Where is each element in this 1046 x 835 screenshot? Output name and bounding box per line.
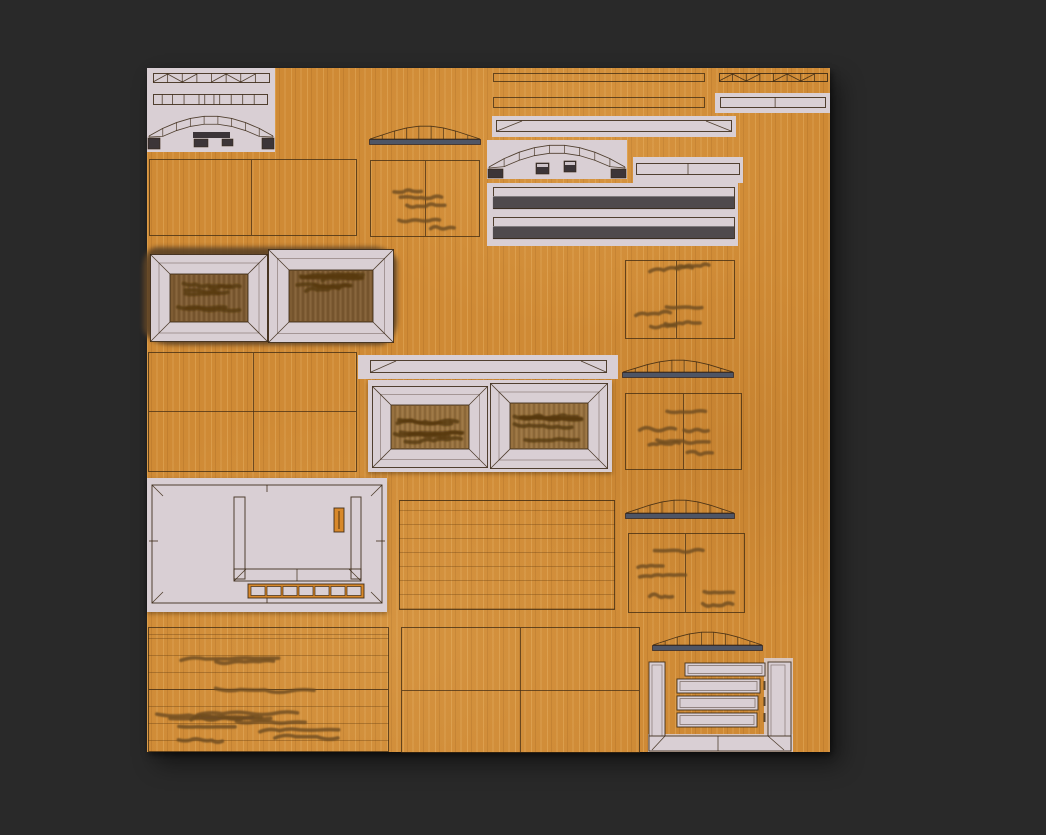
thin-rail-2: [493, 97, 705, 108]
segmented-rail: [636, 163, 740, 175]
hatched-strip-top-right: [719, 73, 828, 82]
chamfer-rail-panel-2: [358, 355, 618, 379]
beveled-rail: [370, 360, 607, 373]
dark-rail-2: [493, 226, 734, 238]
viewer-canvas: [0, 0, 1046, 835]
two-cell-strip-panel-mid: [633, 157, 743, 183]
hatched-plank-strip: [153, 73, 270, 83]
grain-cells-4: [628, 533, 745, 613]
beveled-rail: [496, 120, 732, 132]
roof-strip-1: [369, 124, 481, 145]
plain-cells-3: [401, 627, 640, 753]
grain-planks-bottom-left: [148, 627, 389, 752]
chamfer-rail-panel: [492, 116, 736, 137]
framed-panel-4: [490, 383, 608, 469]
segmented-rail: [720, 97, 826, 108]
plain-cells-2: [148, 352, 357, 472]
arch-wireframe: [147, 112, 275, 150]
slatted-rect: [399, 500, 615, 610]
plain-cells-1: [149, 159, 357, 236]
burnt-window-pair: [147, 246, 397, 347]
roof-strip-2: [622, 358, 734, 378]
thin-rail-1: [493, 73, 705, 82]
framed-panel-1: [150, 254, 268, 342]
framed-panel-2: [268, 249, 394, 343]
roof-strip-4: [652, 630, 763, 651]
dark-rail-1: [493, 196, 734, 208]
arch-panel: [487, 140, 627, 179]
grain-cells-2: [625, 260, 735, 339]
grain-cells-1: [370, 160, 480, 237]
framed-panel-3: [372, 386, 488, 468]
two-cell-strip-panel-top-right: [715, 93, 830, 113]
double-dark-rails-panel: [487, 183, 738, 246]
grain-cells-3: [625, 393, 742, 470]
clean-window-pair: [368, 380, 612, 472]
arch-with-feet: [487, 140, 627, 179]
door-frame-panel: [147, 478, 387, 612]
segmented-plank-strip: [153, 94, 268, 105]
parts-panel-top-left: [147, 68, 275, 152]
shutter-frame: [648, 656, 793, 752]
wood-texture-atlas[interactable]: [147, 68, 830, 752]
roof-strip-3: [625, 498, 735, 519]
